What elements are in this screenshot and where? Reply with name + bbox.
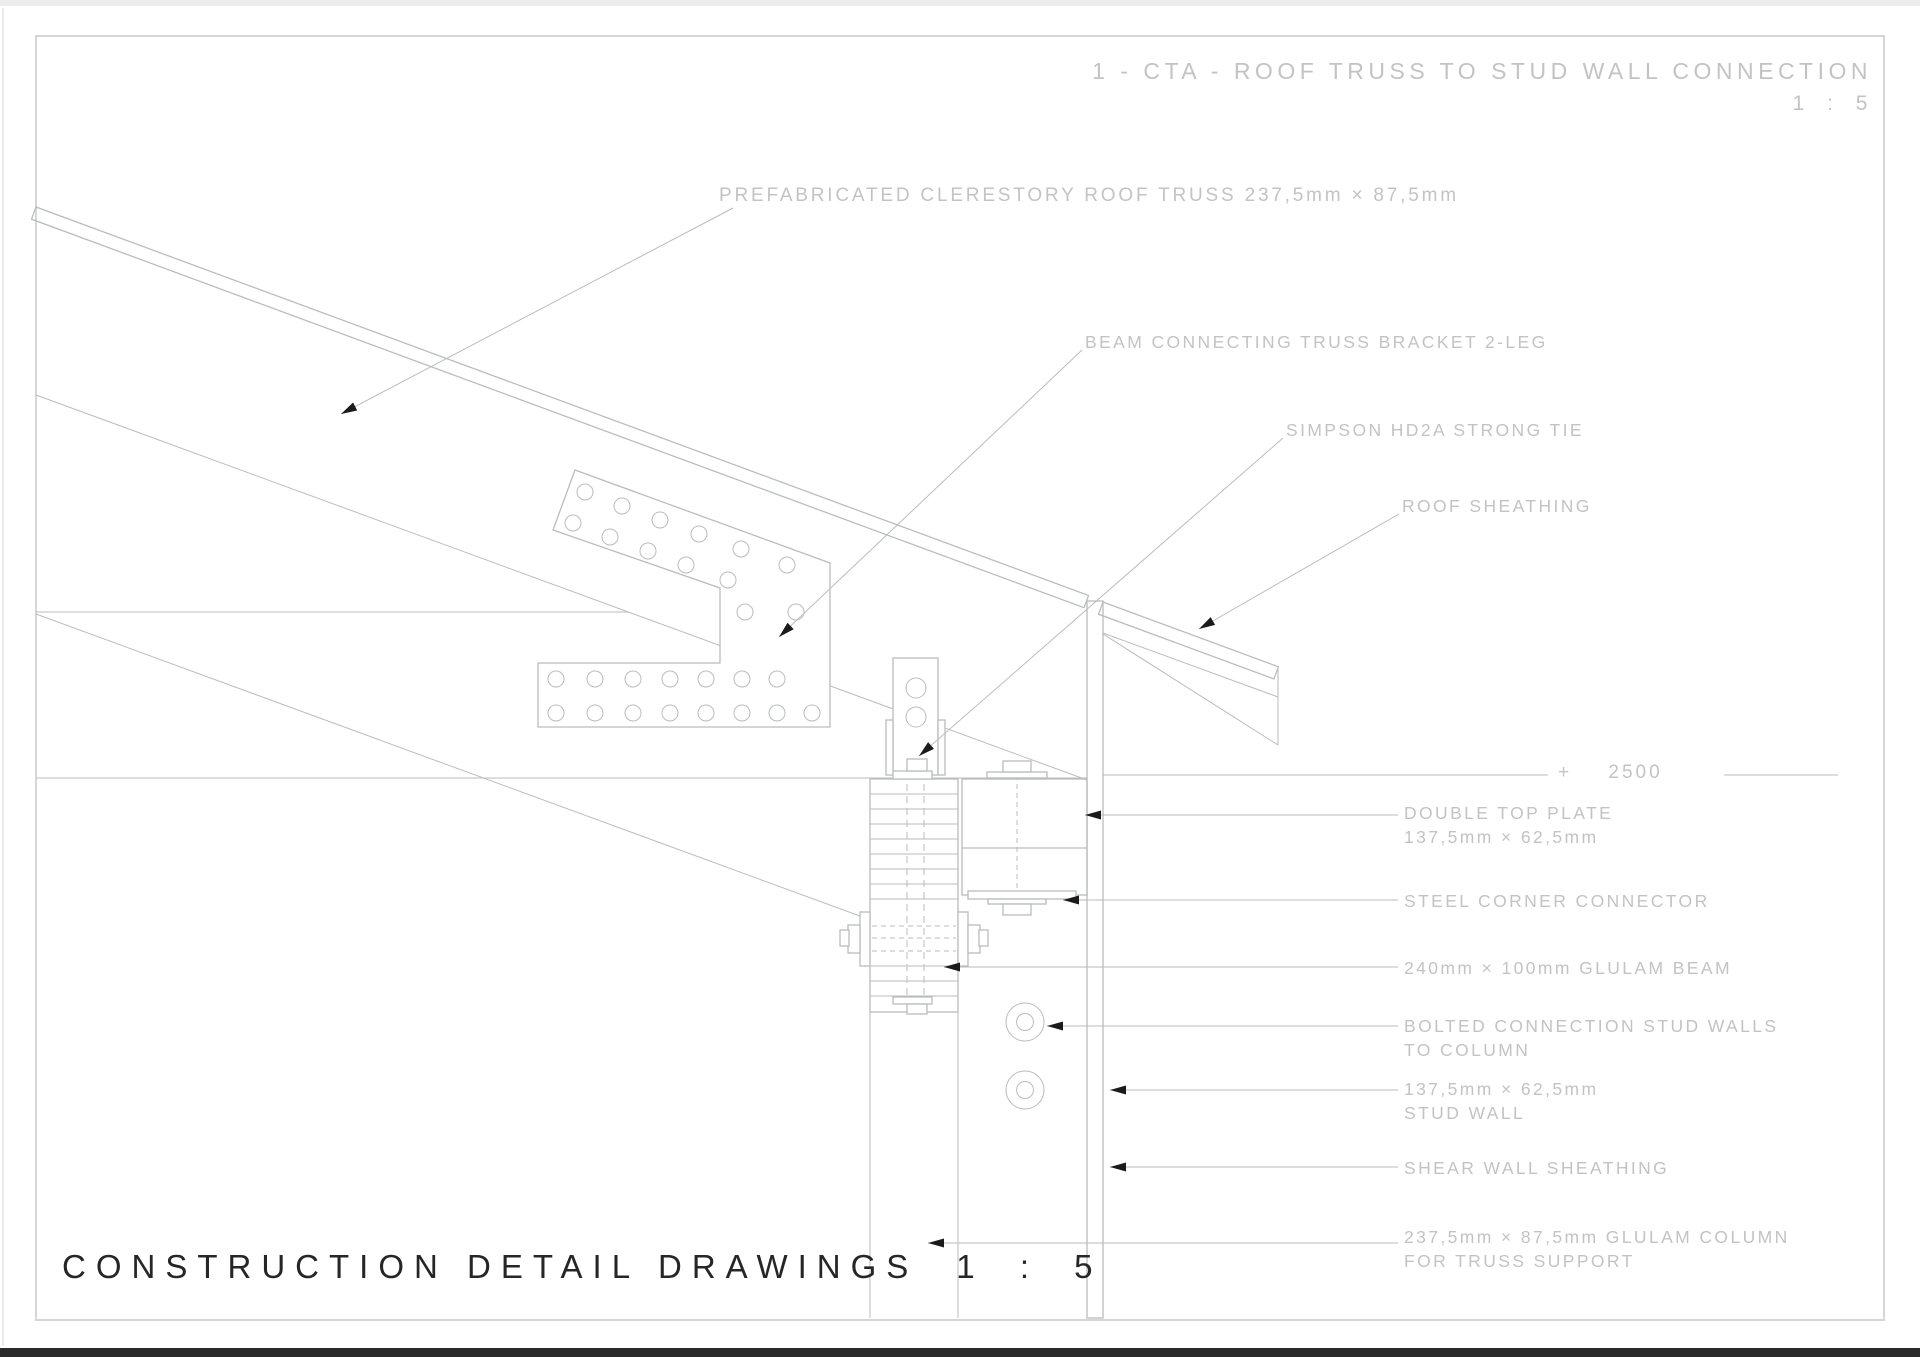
- truss-overhang-end: [1103, 633, 1278, 745]
- drawing-sheet: 1 - CTA - ROOF TRUSS TO STUD WALL CONNEC…: [0, 0, 1920, 1357]
- callout-line: 237,5mm × 87,5mm GLULAM COLUMN: [1404, 1227, 1790, 1247]
- callout-roof-sheathing: ROOF SHEATHING: [1402, 494, 1592, 518]
- callout-line: DOUBLE TOP PLATE: [1404, 803, 1613, 823]
- simpson-strong-tie: [886, 658, 945, 779]
- sheet-title: CONSTRUCTION DETAIL DRAWINGS1 : 5: [62, 1248, 1103, 1286]
- callout-stud-wall: 137,5mm × 62,5mm STUD WALL: [1404, 1077, 1599, 1125]
- drawing-scale: 1 : 5: [1793, 92, 1872, 116]
- callout-steel-corner: STEEL CORNER CONNECTOR: [1404, 889, 1710, 913]
- glulam-beam-section: [840, 779, 988, 1014]
- leader-lines: [339, 208, 1399, 1248]
- double-top-plate-section: [962, 761, 1087, 912]
- level-mark-2500: + 2500: [1558, 762, 1663, 784]
- callout-beam-bracket: BEAM CONNECTING TRUSS BRACKET 2-LEG: [1085, 330, 1548, 354]
- callout-bolted-connection: BOLTED CONNECTION STUD WALLS TO COLUMN: [1404, 1014, 1778, 1062]
- drawing-title: 1 - CTA - ROOF TRUSS TO STUD WALL CONNEC…: [1092, 58, 1872, 85]
- sheet-scale: 1 : 5: [956, 1248, 1102, 1285]
- truss-bracket-2-leg: [538, 470, 830, 727]
- shear-wall-sheathing-strip: [1087, 601, 1103, 1318]
- steel-corner-connector-part: [968, 891, 1076, 915]
- callout-double-top-plate: DOUBLE TOP PLATE 137,5mm × 62,5mm: [1404, 801, 1613, 849]
- callout-line: STUD WALL: [1404, 1103, 1525, 1123]
- callout-glulam-column: 237,5mm × 87,5mm GLULAM COLUMN FOR TRUSS…: [1404, 1225, 1790, 1273]
- callout-line: FOR TRUSS SUPPORT: [1404, 1251, 1635, 1271]
- callout-line: 137,5mm × 62,5mm: [1404, 1079, 1599, 1099]
- callout-line: BOLTED CONNECTION STUD WALLS: [1404, 1016, 1778, 1036]
- callout-line: TO COLUMN: [1404, 1040, 1530, 1060]
- callout-line: 137,5mm × 62,5mm: [1404, 827, 1599, 847]
- callout-glulam-beam: 240mm × 100mm GLULAM BEAM: [1404, 956, 1732, 980]
- callout-shear-wall-sheathing: SHEAR WALL SHEATHING: [1404, 1156, 1669, 1180]
- callout-simpson-tie: SIMPSON HD2A STRONG TIE: [1286, 418, 1584, 442]
- wall-bolt-washers: [1006, 1003, 1044, 1109]
- sheet-title-text: CONSTRUCTION DETAIL DRAWINGS: [62, 1248, 918, 1285]
- callout-prefab-truss: PREFABRICATED CLERESTORY ROOF TRUSS 237,…: [719, 184, 1459, 208]
